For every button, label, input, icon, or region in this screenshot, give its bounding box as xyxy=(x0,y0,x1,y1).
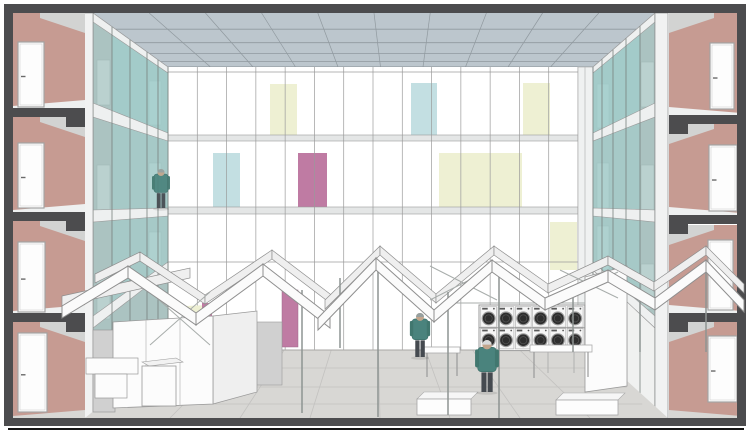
floor-slab xyxy=(4,108,85,117)
slab-step xyxy=(66,117,85,127)
left-structural-bar xyxy=(4,4,13,426)
left-room-door xyxy=(18,42,44,107)
floor-slab xyxy=(669,313,746,322)
door-handle xyxy=(21,278,26,279)
right-room-door xyxy=(710,43,734,109)
slab-step xyxy=(669,224,688,234)
stall-side-face xyxy=(213,311,257,404)
floor-slab xyxy=(669,215,746,224)
slab-step xyxy=(66,221,85,231)
door-handle xyxy=(21,76,26,77)
slab-step xyxy=(669,124,688,134)
left-room-door xyxy=(18,242,45,312)
door-handle xyxy=(711,370,716,371)
washing-machine xyxy=(515,329,531,349)
slab-step xyxy=(66,322,85,332)
stall-box xyxy=(95,374,127,398)
counter-front xyxy=(142,366,176,406)
door-handle xyxy=(21,374,26,375)
washing-machine xyxy=(515,307,531,327)
floor-slab xyxy=(4,313,85,322)
wall-panel-magenta xyxy=(298,153,327,207)
bench xyxy=(556,400,618,415)
door-handle xyxy=(21,177,26,178)
skylight-glass xyxy=(93,13,655,67)
wall-panel-yellow xyxy=(523,83,550,137)
left-room-door xyxy=(18,333,47,412)
wall-panel-yellow xyxy=(439,153,522,207)
bench-top xyxy=(556,393,625,400)
left-room-door xyxy=(18,143,44,208)
right-structural-bar xyxy=(737,4,746,426)
wall-panel-yellow xyxy=(550,222,577,270)
slab-step xyxy=(669,322,688,332)
washing-machine xyxy=(498,329,514,349)
door-handle xyxy=(713,77,718,78)
washing-machine xyxy=(550,307,566,327)
table xyxy=(530,345,592,352)
washing-machine xyxy=(481,307,497,327)
ground-slab-band xyxy=(4,418,746,426)
floor-slab xyxy=(4,212,85,221)
bench xyxy=(417,399,471,415)
door-handle xyxy=(712,179,717,180)
washing-machine-rack xyxy=(479,305,585,351)
table xyxy=(424,347,460,353)
washing-machine xyxy=(498,307,514,327)
near-glass-column xyxy=(84,13,93,418)
rendering-canvas xyxy=(0,0,750,431)
skylight-ceiling-grid xyxy=(93,13,655,67)
wall-panel-blue xyxy=(411,83,437,137)
roof-slab-band xyxy=(4,4,746,13)
wall-panel-yellow xyxy=(270,84,297,136)
right-room-door xyxy=(709,145,737,211)
floor-slab xyxy=(669,115,746,124)
baseline xyxy=(8,428,744,430)
atrium-section-rendering xyxy=(0,0,750,431)
low-counter xyxy=(86,358,138,374)
near-glass-column xyxy=(655,13,668,418)
washing-machine xyxy=(567,307,583,327)
right-room-door xyxy=(708,336,737,402)
